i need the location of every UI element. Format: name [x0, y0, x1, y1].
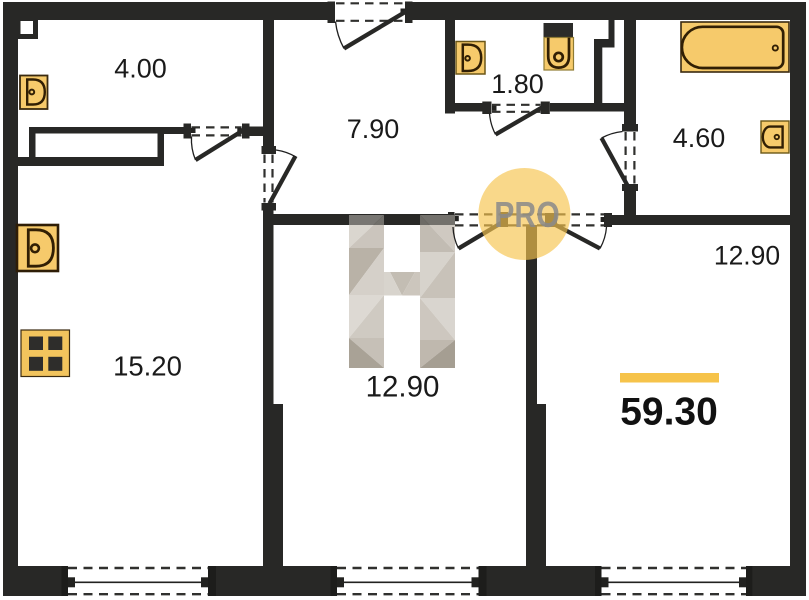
svg-text:4.00: 4.00 — [114, 54, 167, 84]
svg-text:1.80: 1.80 — [491, 69, 544, 99]
svg-text:59.30: 59.30 — [620, 391, 718, 434]
svg-text:12.90: 12.90 — [714, 240, 780, 270]
svg-text:15.20: 15.20 — [113, 351, 182, 382]
svg-text:PRO: PRO — [494, 196, 560, 236]
svg-text:12.90: 12.90 — [366, 371, 440, 404]
svg-text:4.60: 4.60 — [673, 123, 726, 153]
svg-text:7.90: 7.90 — [347, 114, 400, 144]
